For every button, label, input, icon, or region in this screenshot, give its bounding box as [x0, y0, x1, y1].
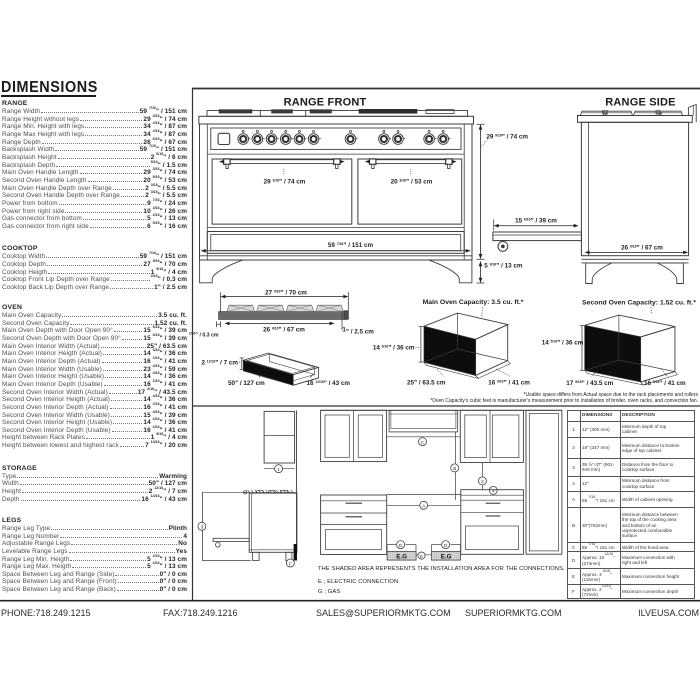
svg-text:D: D — [399, 543, 403, 549]
svg-text:26 6/16” / 67 cm: 26 6/16” / 67 cm — [621, 245, 663, 252]
svg-text:D: D — [444, 543, 448, 549]
svg-text:20 9/16” / 53 cm: 20 9/16” / 53 cm — [391, 178, 433, 185]
svg-text:F: F — [289, 561, 292, 567]
svg-text:B: B — [453, 466, 456, 472]
svg-text:1” / 2.5 cm: 1” / 2.5 cm — [342, 326, 374, 335]
svg-text:E.G: E.G — [396, 553, 407, 560]
svg-text:50” / 127 cm: 50” / 127 cm — [228, 380, 265, 387]
svg-text:27 9/16” / 70 cm: 27 9/16” / 70 cm — [265, 290, 307, 297]
svg-text:14 6/16” / 36 cm: 14 6/16” / 36 cm — [373, 345, 415, 352]
svg-text:2/16” / 0.3 cm: 2/16” / 0.3 cm — [189, 331, 219, 338]
svg-text:2 12/16” / 7 cm: 2 12/16” / 7 cm — [201, 359, 238, 366]
svg-text:RANGE SIDE: RANGE SIDE — [605, 97, 675, 109]
svg-text:3: 3 — [201, 525, 204, 531]
svg-text:16 9/16” / 41 cm: 16 9/16” / 41 cm — [488, 380, 530, 387]
svg-text:15 6/16” / 39 cm: 15 6/16” / 39 cm — [515, 217, 557, 224]
svg-text:59 7/16” / 151 cm: 59 7/16” / 151 cm — [328, 242, 374, 249]
svg-text:E: E — [420, 554, 423, 560]
svg-text:C: C — [421, 440, 425, 446]
svg-text:E.G: E.G — [441, 553, 452, 560]
svg-text:1: 1 — [277, 467, 280, 473]
svg-text:26 6/16” / 67 cm: 26 6/16” / 67 cm — [263, 326, 305, 333]
svg-text:2: 2 — [481, 479, 484, 485]
svg-text:25” / 63.5 cm: 25” / 63.5 cm — [407, 380, 446, 387]
svg-text:14 5/16” / 36 cm: 14 5/16” / 36 cm — [542, 340, 584, 347]
svg-text:16 3/16” / 41 cm: 16 3/16” / 41 cm — [644, 380, 686, 387]
svg-text:5 9/16” / 13 cm: 5 9/16” / 13 cm — [484, 263, 523, 270]
svg-text:17 5/16” / 43.5 cm: 17 5/16” / 43.5 cm — [566, 380, 613, 387]
svg-text:29 3/16” / 74 cm: 29 3/16” / 74 cm — [264, 178, 306, 185]
svg-text:Second Oven Capacity: 1.52 cu.: Second Oven Capacity: 1.52 cu. ft.* — [582, 299, 696, 306]
svg-text:16 12/16” / 43 cm: 16 12/16” / 43 cm — [307, 380, 351, 387]
svg-text:RANGE FRONT: RANGE FRONT — [284, 97, 367, 109]
svg-text:29 9/16” / 74 cm: 29 9/16” / 74 cm — [486, 133, 528, 140]
svg-text:Main Oven Capacity: 3.5 cu. ft: Main Oven Capacity: 3.5 cu. ft.* — [423, 299, 524, 306]
